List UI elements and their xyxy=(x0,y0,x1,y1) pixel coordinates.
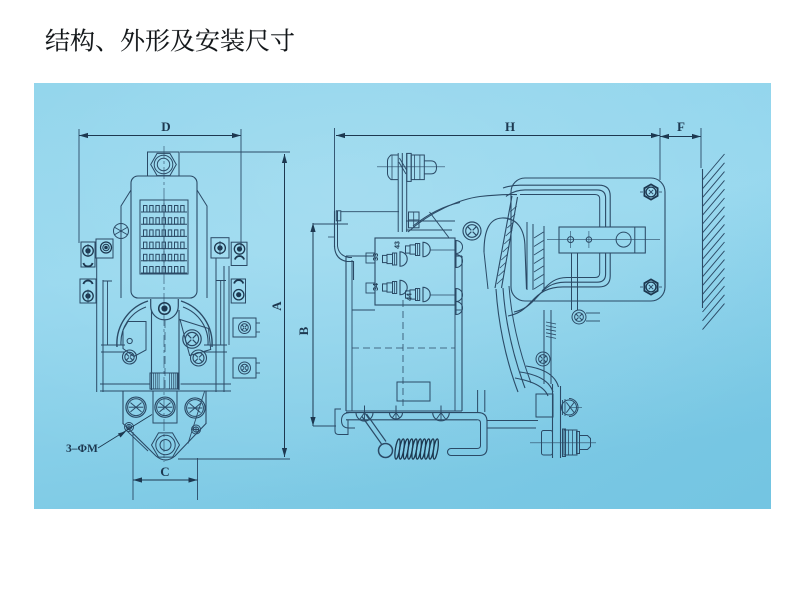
svg-text:H: H xyxy=(505,119,515,134)
svg-text:A: A xyxy=(269,301,284,311)
svg-text:F: F xyxy=(677,119,685,134)
svg-text:D: D xyxy=(161,119,170,134)
svg-text:3–ΦM: 3–ΦM xyxy=(66,443,98,455)
svg-text:43: 43 xyxy=(395,241,402,249)
svg-text:34: 34 xyxy=(373,283,380,291)
svg-text:33: 33 xyxy=(373,253,380,261)
svg-text:C: C xyxy=(160,464,169,479)
svg-text:44: 44 xyxy=(407,293,414,301)
svg-text:B: B xyxy=(296,326,311,335)
